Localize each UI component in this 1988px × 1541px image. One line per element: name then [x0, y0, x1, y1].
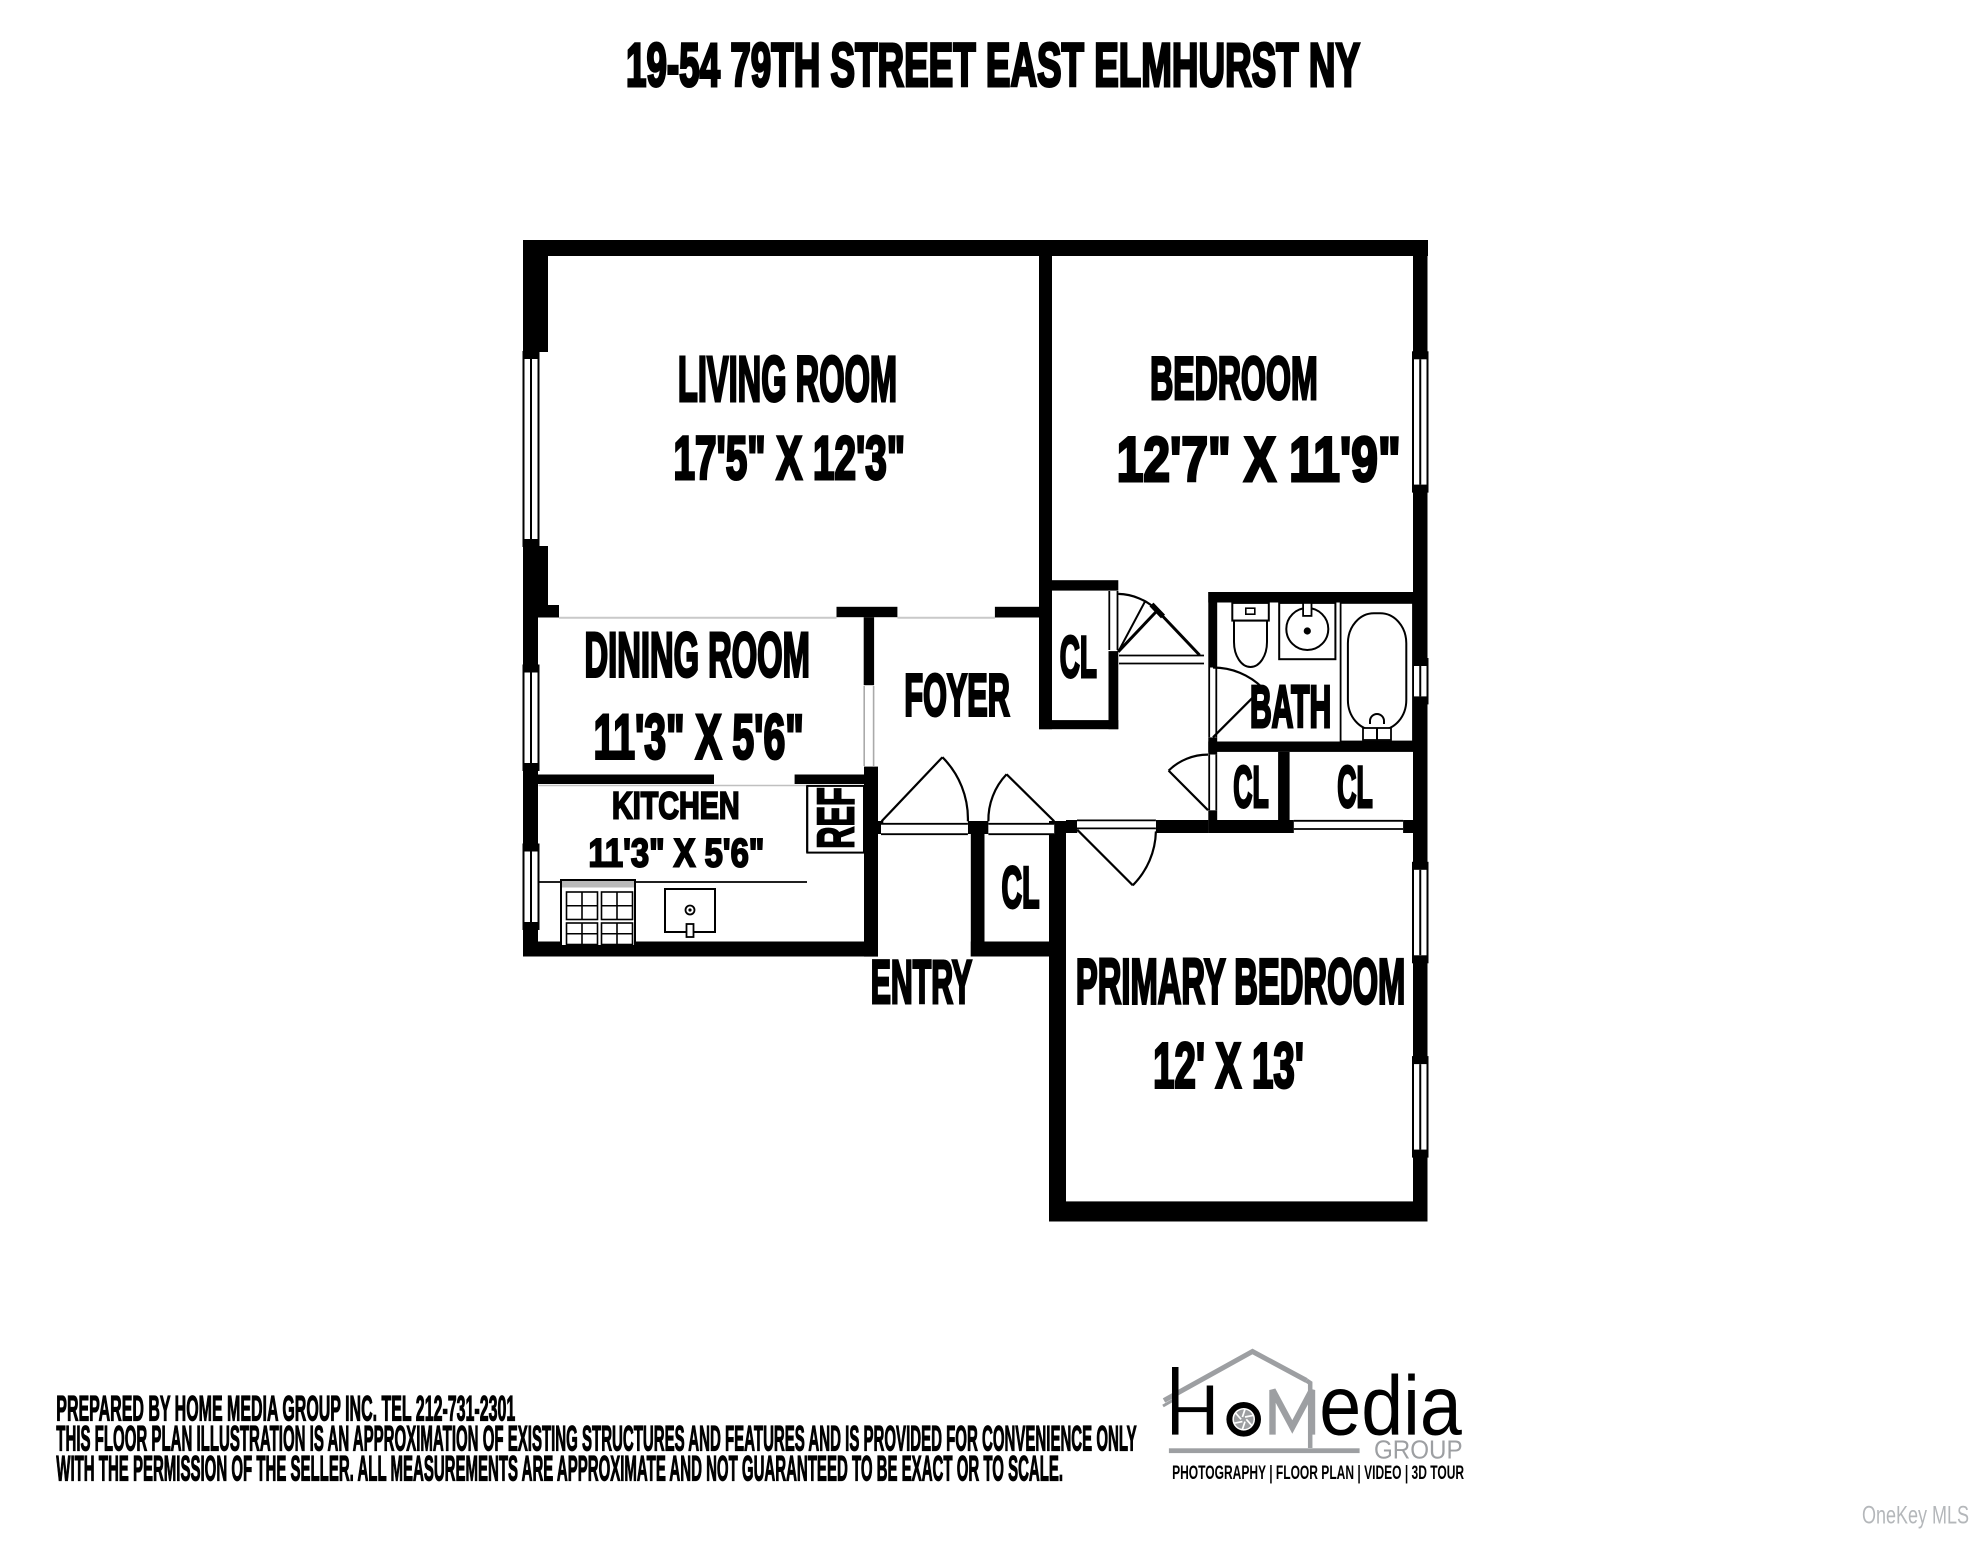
svg-text:FOYER: FOYER	[904, 662, 1009, 728]
svg-text:LIVING ROOM: LIVING ROOM	[678, 343, 897, 415]
svg-text:PHOTOGRAPHY | FLOOR PLAN | VID: PHOTOGRAPHY | FLOOR PLAN | VIDEO | 3D TO…	[1172, 1463, 1464, 1484]
svg-text:CL: CL	[1002, 856, 1040, 921]
svg-text:12'7" X 11'9": 12'7" X 11'9"	[1117, 425, 1401, 495]
svg-text:CL: CL	[1233, 755, 1268, 820]
svg-text:CL: CL	[1337, 755, 1372, 820]
svg-text:GROUP: GROUP	[1374, 1435, 1463, 1465]
svg-text:WITH THE PERMISSION OF THE SEL: WITH THE PERMISSION OF THE SELLER. ALL M…	[56, 1450, 1063, 1489]
svg-text:DINING ROOM: DINING ROOM	[585, 621, 810, 691]
svg-text:ENTRY: ENTRY	[871, 948, 972, 1016]
svg-text:CL: CL	[1060, 625, 1097, 690]
svg-text:PRIMARY BEDROOM: PRIMARY BEDROOM	[1076, 946, 1406, 1018]
svg-text:17'5" X 12'3": 17'5" X 12'3"	[674, 424, 906, 492]
svg-text:11'3" X 5'6": 11'3" X 5'6"	[594, 703, 804, 773]
svg-text:BATH: BATH	[1250, 674, 1331, 740]
svg-text:11'3" X 5'6": 11'3" X 5'6"	[589, 832, 765, 876]
svg-text:19-54 79TH STREET EAST ELMHURS: 19-54 79TH STREET EAST ELMHURST NY	[626, 31, 1360, 99]
svg-text:12' X 13': 12' X 13'	[1153, 1030, 1304, 1102]
svg-text:BEDROOM: BEDROOM	[1150, 345, 1318, 412]
svg-text:OneKey MLS: OneKey MLS	[1862, 1502, 1969, 1530]
svg-text:REF: REF	[808, 787, 866, 848]
svg-text:KITCHEN: KITCHEN	[612, 786, 740, 828]
